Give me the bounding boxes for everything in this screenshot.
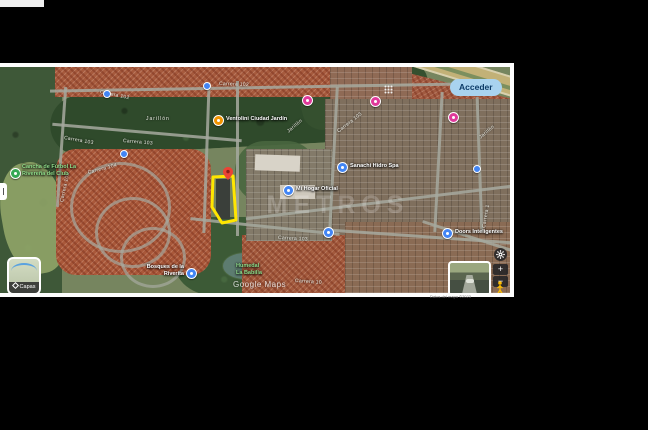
google-maps-watermark: Google Maps — [233, 280, 286, 289]
pink-poi-marker[interactable] — [370, 96, 381, 107]
google-apps-grid-icon[interactable] — [384, 85, 393, 94]
cropped-window-sliver — [0, 0, 44, 7]
satellite-map[interactable]: Carrera 102 Carrera 102 Carrera 103 Carr… — [0, 67, 510, 293]
site-watermark: METROS — [258, 191, 418, 220]
humedal-label: HumedalLa Babilla — [236, 263, 262, 277]
layers-thumb-road — [11, 263, 37, 279]
cropped-glyph — [3, 188, 4, 195]
doors-label: Doors Inteligentes — [455, 229, 503, 236]
conjunto-label: Bosques de laRiverita — [146, 264, 184, 278]
soccer-field-marker[interactable] — [10, 168, 21, 179]
signin-button[interactable]: Acceder — [450, 79, 502, 96]
doors-marker[interactable] — [442, 228, 453, 239]
canvas: { "header": { "signin": "Acceder" }, "co… — [0, 0, 648, 430]
settings-button[interactable] — [494, 248, 507, 261]
shopping-marker[interactable] — [323, 227, 334, 238]
white-building-clinic — [255, 154, 301, 172]
conjunto-marker[interactable] — [186, 268, 197, 279]
pink-poi-marker[interactable] — [448, 112, 459, 123]
ventolini-label: Ventolini Ciudad Jardín — [226, 116, 287, 123]
layers-label: Capas — [9, 282, 39, 293]
streetview-thumbnail[interactable] — [448, 261, 491, 293]
cropped-edge-control — [0, 183, 7, 200]
curved-street — [120, 227, 186, 288]
street-label: Carrera 102 — [219, 81, 249, 88]
transit-dot-marker[interactable] — [473, 165, 481, 173]
red-pin-icon[interactable] — [223, 167, 233, 180]
layers-control[interactable]: Capas — [7, 257, 41, 293]
transit-dot-marker[interactable] — [203, 82, 211, 90]
mihogar-marker[interactable] — [283, 185, 294, 196]
pink-poi-marker[interactable] — [302, 95, 313, 106]
roof-cluster-top — [55, 67, 337, 97]
transit-dot-marker[interactable] — [103, 90, 111, 98]
gear-icon — [496, 250, 505, 259]
sanachi-label: Sanachi Hidro Spa — [350, 163, 399, 170]
transit-dot-marker[interactable] — [120, 150, 128, 158]
soccer-field-label: Cancha de Fútbol LaRivereña del Club — [22, 164, 76, 178]
ventolini-marker[interactable] — [213, 115, 224, 126]
zoom-in-button[interactable]: + — [493, 264, 508, 275]
sanachi-marker[interactable] — [337, 162, 348, 173]
streetview-car — [466, 279, 474, 283]
pegman-icon[interactable] — [496, 281, 504, 293]
map-attribution: Datos del mapa ©2023 — [430, 294, 471, 299]
layers-icon — [12, 282, 19, 289]
street-label: Jarillón — [146, 116, 170, 122]
streetview-road — [462, 275, 477, 293]
mihogar-label: Mi Hogar Oficial — [296, 186, 338, 193]
